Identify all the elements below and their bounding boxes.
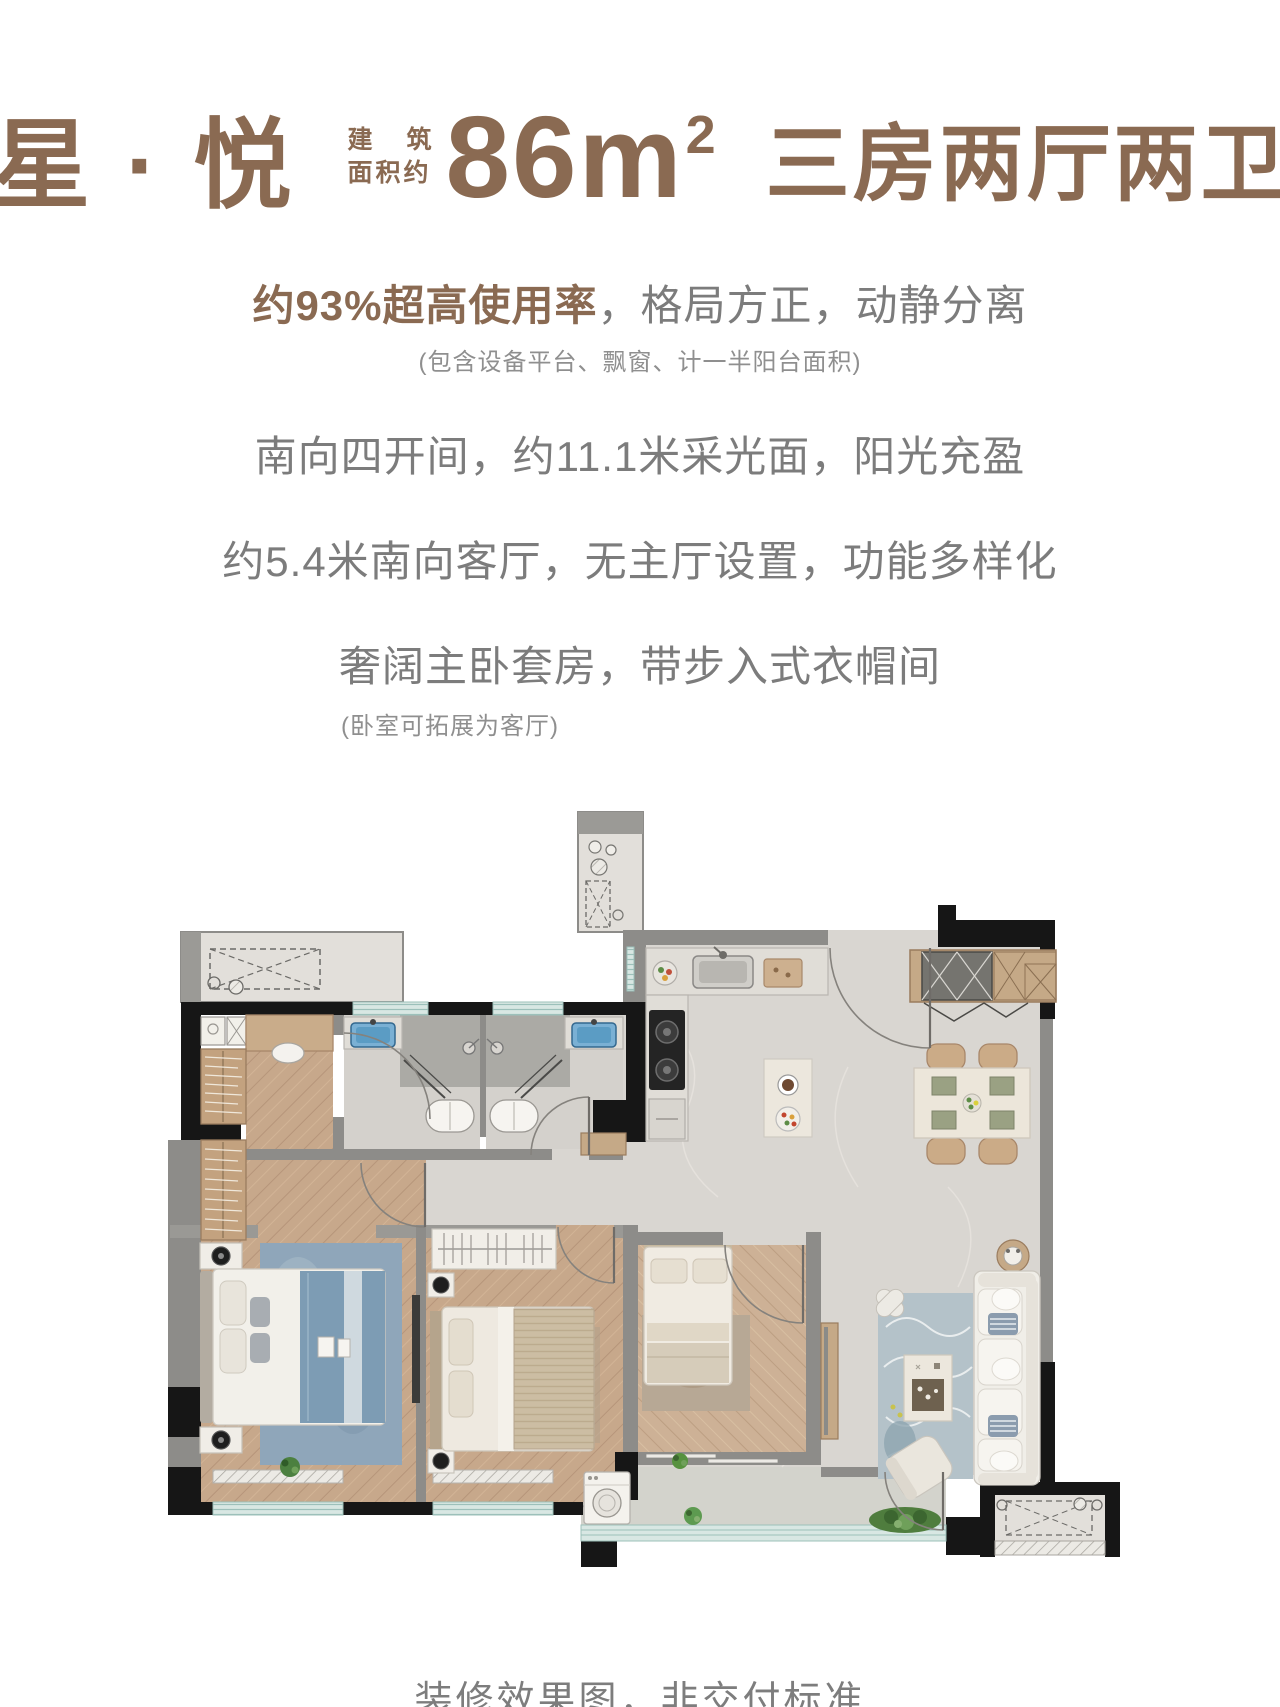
layout-label: 三房两厅两卫 xyxy=(766,97,1280,218)
feature-line-1-note: (包含设备平台、飘窗、计一半阳台面积) xyxy=(0,342,1280,377)
fruit-plate-icon xyxy=(776,1107,800,1131)
feature-block-4: 奢阔主卧套房，带步入式衣帽间 (卧室可拓展为客厅) xyxy=(339,633,941,741)
feature-line-1-highlight: 约93%超高使用率 xyxy=(252,282,597,329)
walk-in-closet xyxy=(201,1049,246,1240)
master-bedroom xyxy=(200,1243,402,1465)
sofa xyxy=(974,1271,1040,1485)
cutting-board-icon xyxy=(764,959,802,987)
dining-chair xyxy=(979,1044,1017,1070)
area-group: 建筑 面积约 86m2 xyxy=(347,105,713,210)
feature-line-4: 奢阔主卧套房，带步入式衣帽间 xyxy=(339,633,941,694)
dining-chair xyxy=(979,1138,1017,1164)
dining-chair xyxy=(927,1044,965,1070)
feature-line-1-rest: ，格局方正，动静分离 xyxy=(598,282,1028,329)
area-label-line2: 面积约 xyxy=(347,157,433,191)
bed-headboard xyxy=(200,1271,213,1423)
area-label: 建筑 面积约 xyxy=(347,124,433,191)
equipment-platform-bottom xyxy=(995,1495,1105,1555)
equipment-platform-top xyxy=(181,932,403,1002)
island-table xyxy=(764,1059,812,1137)
feature-line-4-note: (卧室可拓展为客厅) xyxy=(339,706,941,741)
flyer-page: 星 · 悦 建筑 面积约 86m2 三房两厅两卫 约93%超高使用率，格局方正，… xyxy=(0,0,1280,1707)
area-exponent: 2 xyxy=(686,105,716,165)
plants xyxy=(280,1457,300,1477)
dining-chair xyxy=(927,1138,965,1164)
feature-line-1: 约93%超高使用率，格局方正，动静分离 xyxy=(0,272,1280,333)
washing-machine-icon xyxy=(584,1472,630,1524)
kitchen-flue-shaft xyxy=(578,812,643,932)
coffee-table xyxy=(904,1355,952,1421)
feature-line-3: 约5.4米南向客厅，无主厅设置，功能多样化 xyxy=(0,528,1280,589)
area-label-line1: 建筑 xyxy=(347,124,433,157)
floor-plan-container xyxy=(0,767,1280,1579)
bed-headboard xyxy=(430,1311,442,1449)
floor-plan-illustration xyxy=(148,767,1133,1579)
header: 星 · 悦 建筑 面积约 86m2 三房两厅两卫 xyxy=(0,86,1280,228)
feature-list: 约93%超高使用率，格局方正，动静分离 (包含设备平台、飘窗、计一半阳台面积) … xyxy=(0,272,1280,741)
sliding-door-bar xyxy=(412,1295,420,1403)
tv-console xyxy=(821,1323,838,1439)
area-value: 86m2 xyxy=(445,105,713,210)
feature-line-2: 南向四开间，约11.1米采光面，阳光充盈 xyxy=(0,423,1280,484)
disclaimer-text: 装修效果图，非交付标准 xyxy=(0,1669,1280,1707)
project-title: 星 · 悦 xyxy=(0,86,295,228)
